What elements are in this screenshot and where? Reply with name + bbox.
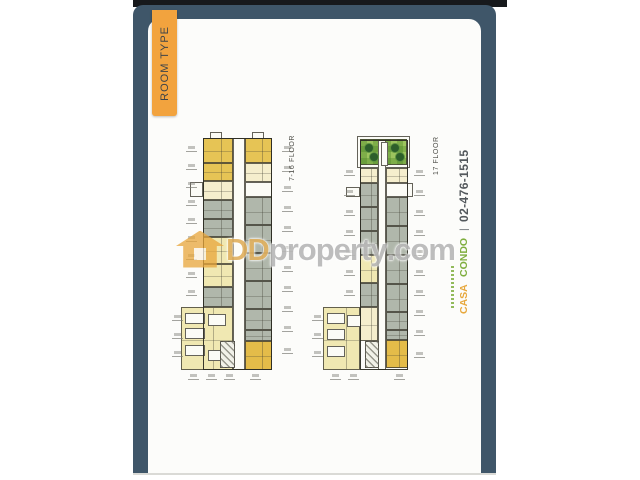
dimension-tick [186,200,197,208]
dimension-tick [186,164,197,172]
dimension-tick [186,218,197,226]
right-tower-unit-white [347,315,361,327]
dimension-tick [188,374,199,382]
dimension-tick [312,315,323,323]
dimension-tick [186,146,197,154]
room-type-label: ROOM TYPE [159,26,171,101]
dimension-tick [312,351,323,359]
brochure-photo: ROOM TYPE 7-16 FLOOR17 FLOOR DDproperty.… [0,0,640,480]
dimension-tick [224,374,235,382]
dimension-tick [344,170,355,178]
dimension-tick [186,290,197,298]
brand-casa: CASA [458,282,470,316]
dimension-tick [344,270,355,278]
left-tower-floor-label: 7-16 FLOOR [289,132,300,184]
dimension-tick [282,326,293,334]
dimension-tick [414,190,425,198]
dimension-tick [282,348,293,356]
dimension-tick [414,290,425,298]
dimension-tick [344,190,355,198]
dimension-tick [282,186,293,194]
watermark-dd: DD [226,234,269,265]
dimension-tick [282,206,293,214]
right-tower-unit-white [327,313,345,324]
dimension-tick [172,333,183,341]
dimension-tick [312,333,323,341]
brand-separator: | [458,227,470,234]
dimension-tick [344,210,355,218]
dimension-tick [172,315,183,323]
dimension-tick [414,170,425,178]
dimension-tick [348,374,359,382]
tree-icon [369,152,379,162]
watermark: DDproperty.com [176,227,455,271]
right-tower-unit-white [327,329,345,340]
dimension-tick [206,374,217,382]
dimension-tick [282,286,293,294]
right-tower-unit-white [327,346,345,357]
right-tower-floor-label: 17 FLOOR [433,137,444,175]
dimension-tick [282,306,293,314]
dimension-tick [330,374,341,382]
dimension-tick [344,290,355,298]
dimension-tick [414,330,425,338]
dimension-tick [186,182,197,190]
watermark-dotcom: .com [387,234,455,265]
watermark-property: property [269,234,387,265]
dimension-tick [186,272,197,280]
house-icon [176,231,224,268]
dimension-tick [414,310,425,318]
dimension-tick [394,374,405,382]
brand-condo: CONDO [458,236,470,279]
left-tower-unit-white [185,313,205,324]
dimension-tick [414,270,425,278]
tree-icon [395,152,405,162]
left-tower-unit-white [185,328,205,339]
room-type-tab: ROOM TYPE [152,10,177,116]
branding-vertical: CASA CONDO | 02-476-1515 [454,186,474,316]
dimension-tick [414,352,425,360]
dimension-tick [172,351,183,359]
left-tower-unit-white [185,345,205,356]
dimension-tick [250,374,261,382]
brand-phone: 02-476-1515 [457,147,471,223]
dimension-tick [414,210,425,218]
